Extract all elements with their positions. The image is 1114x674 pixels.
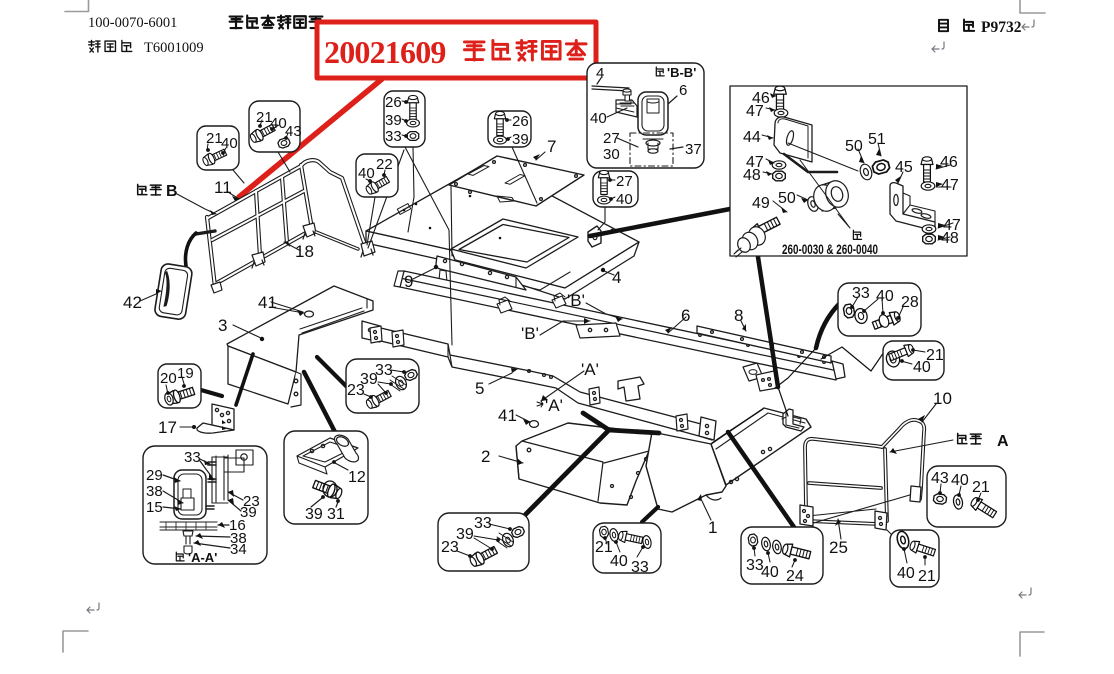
svg-text:45: 45	[895, 159, 913, 176]
svg-text:22: 22	[376, 156, 393, 173]
svg-text:30: 30	[603, 146, 620, 163]
svg-text:4: 4	[612, 268, 621, 287]
svg-text:26: 26	[512, 113, 529, 130]
svg-text:'B-B': 'B-B'	[667, 65, 696, 80]
svg-text:12: 12	[348, 469, 366, 486]
svg-text:7: 7	[547, 137, 556, 156]
svg-text:42: 42	[123, 293, 142, 312]
svg-text:'B': 'B'	[521, 324, 539, 343]
svg-text:40: 40	[951, 472, 969, 489]
svg-text:40: 40	[610, 553, 628, 570]
svg-text:2: 2	[481, 447, 490, 466]
svg-text:47: 47	[746, 103, 764, 120]
svg-text:17: 17	[158, 418, 177, 437]
svg-text:48: 48	[941, 230, 959, 247]
svg-text:40: 40	[221, 135, 238, 152]
svg-text:B: B	[166, 183, 178, 200]
svg-text:1: 1	[708, 518, 717, 537]
svg-text:50: 50	[778, 190, 796, 207]
svg-text:51: 51	[868, 131, 886, 148]
svg-text:39: 39	[385, 112, 402, 129]
svg-text:31: 31	[327, 506, 345, 523]
svg-text:40: 40	[761, 564, 779, 581]
svg-text:40: 40	[913, 359, 931, 376]
svg-text:28: 28	[901, 294, 919, 311]
svg-text:39: 39	[305, 506, 323, 523]
svg-text:40: 40	[590, 110, 607, 127]
svg-text:6: 6	[679, 82, 687, 99]
svg-text:260-0030 & 260-0040: 260-0030 & 260-0040	[782, 242, 878, 257]
svg-text:33: 33	[631, 559, 649, 576]
svg-text:41: 41	[498, 406, 517, 425]
svg-text:11: 11	[214, 178, 232, 197]
svg-text:21: 21	[972, 479, 990, 496]
svg-text:25: 25	[829, 538, 848, 557]
svg-text:39: 39	[512, 131, 529, 148]
svg-text:8: 8	[734, 306, 743, 325]
svg-text:33: 33	[385, 128, 402, 145]
svg-text:33: 33	[852, 285, 870, 302]
svg-text:100-0070-6001: 100-0070-6001	[88, 15, 177, 31]
svg-text:18: 18	[295, 242, 314, 261]
svg-text:9: 9	[404, 272, 413, 291]
svg-text:10: 10	[933, 389, 952, 408]
svg-text:20: 20	[160, 370, 177, 387]
svg-text:21: 21	[918, 568, 936, 585]
svg-text:46: 46	[940, 154, 958, 171]
svg-text:15: 15	[146, 499, 163, 516]
svg-text:34: 34	[230, 541, 247, 558]
svg-text:20021609: 20021609	[324, 34, 446, 70]
svg-text:40: 40	[358, 165, 375, 182]
svg-text:40: 40	[616, 191, 633, 208]
svg-text:4: 4	[596, 65, 604, 82]
svg-text:33: 33	[474, 515, 492, 532]
svg-text:49: 49	[752, 195, 770, 212]
svg-text:27: 27	[603, 130, 620, 147]
svg-text:29: 29	[146, 467, 163, 484]
svg-text:'A-A': 'A-A'	[188, 550, 217, 565]
svg-text:T6001009: T6001009	[144, 40, 204, 56]
svg-text:3: 3	[218, 316, 227, 335]
svg-text:'A': 'A'	[581, 360, 599, 379]
svg-text:6: 6	[681, 306, 690, 325]
svg-text:43: 43	[931, 470, 949, 487]
svg-text:40: 40	[876, 288, 894, 305]
svg-text:27: 27	[616, 173, 633, 190]
svg-text:38: 38	[146, 483, 163, 500]
svg-text:47: 47	[941, 177, 959, 194]
svg-text:'A': 'A'	[545, 396, 563, 415]
svg-text:48: 48	[743, 167, 761, 184]
svg-text:26: 26	[385, 94, 402, 111]
svg-text:19: 19	[177, 365, 194, 382]
svg-text:37: 37	[685, 141, 702, 158]
svg-text:41: 41	[258, 293, 277, 312]
svg-text:43: 43	[285, 123, 302, 140]
svg-text:40: 40	[897, 565, 915, 582]
svg-text:5: 5	[475, 379, 484, 398]
svg-text:33: 33	[184, 449, 201, 466]
svg-text:'B': 'B'	[567, 291, 585, 310]
svg-text:23: 23	[347, 382, 365, 399]
svg-text:44: 44	[743, 129, 761, 146]
svg-text:P9732: P9732	[981, 19, 1022, 36]
svg-text:24: 24	[786, 568, 804, 585]
svg-text:A: A	[997, 433, 1009, 450]
svg-text:23: 23	[441, 539, 459, 556]
svg-text:50: 50	[845, 138, 863, 155]
